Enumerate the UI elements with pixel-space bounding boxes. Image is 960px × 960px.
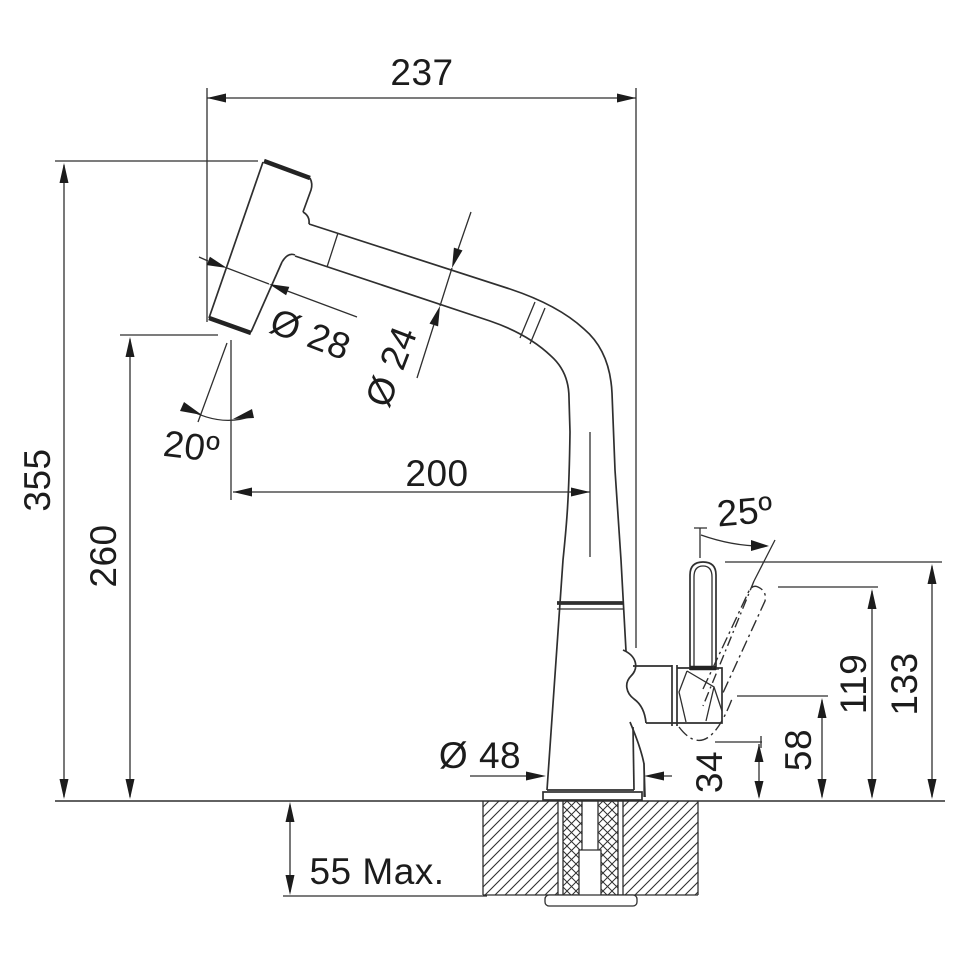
dim-200: 200 xyxy=(233,453,590,497)
dim-label-58: 58 xyxy=(778,729,819,771)
dim-label-dia24: Ø 24 xyxy=(357,321,425,412)
countertop-section xyxy=(483,801,698,906)
dim-34: 34 xyxy=(689,736,764,799)
hose-connector xyxy=(579,850,601,895)
dim-label-dia28: Ø 28 xyxy=(265,300,356,368)
spray-head-top-cap xyxy=(264,161,310,178)
handle-mount xyxy=(623,650,722,726)
dim-260: 260 xyxy=(83,335,218,799)
dim-58: 58 xyxy=(737,696,828,799)
dim-355: 355 xyxy=(17,161,258,799)
spout-tube xyxy=(295,224,626,790)
dim-label-355: 355 xyxy=(17,448,58,511)
dim-dia-24: Ø 24 xyxy=(357,212,471,412)
spray-head-seam xyxy=(327,233,338,267)
dim-angle-20: 20º xyxy=(161,340,254,500)
dim-label-dia48: Ø 48 xyxy=(439,735,521,776)
dim-237: 237 xyxy=(207,52,636,648)
mounting-nut xyxy=(545,895,637,906)
dim-label-25deg: 25º xyxy=(715,489,775,535)
tube-joint-seam xyxy=(530,308,545,344)
handle-joint-ring xyxy=(672,665,677,726)
dim-label-55max: 55 Max. xyxy=(309,851,444,892)
technical-drawing-page: 237 355 260 200 20º Ø 28 Ø 24 xyxy=(0,0,960,960)
dim-label-260: 260 xyxy=(83,524,124,587)
spray-head xyxy=(209,161,338,333)
dim-label-237: 237 xyxy=(390,52,453,93)
lever-ghost-bottom-arc xyxy=(679,699,732,740)
dim-dia-48: Ø 48 xyxy=(439,735,672,797)
dim-label-200: 200 xyxy=(405,453,468,494)
faucet-body xyxy=(543,722,645,800)
dim-label-34: 34 xyxy=(689,751,730,793)
base-flange xyxy=(543,792,642,800)
tube-joint-seam xyxy=(520,302,535,338)
lever xyxy=(690,562,716,670)
dim-label-133: 133 xyxy=(884,652,925,715)
dim-55-max: 55 Max. xyxy=(283,802,487,896)
spray-head-face xyxy=(209,318,251,333)
dim-dia-28: Ø 28 xyxy=(199,257,357,369)
dim-label-20deg: 20º xyxy=(161,423,222,471)
handle-facets xyxy=(679,671,722,722)
lever-ghost-axis xyxy=(703,581,754,706)
faucet-dimension-drawing: 237 355 260 200 20º Ø 28 Ø 24 xyxy=(0,0,960,960)
dim-angle-25: 25º xyxy=(694,489,775,581)
dim-label-119: 119 xyxy=(833,654,874,715)
